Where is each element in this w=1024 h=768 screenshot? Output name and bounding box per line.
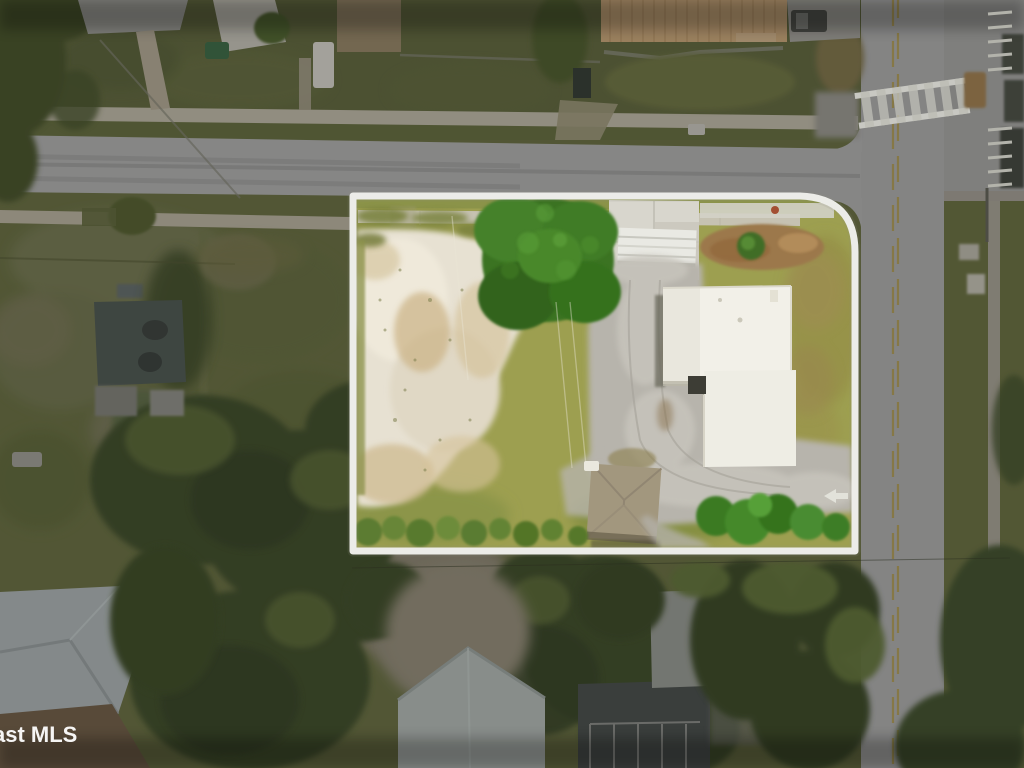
svg-text:ast MLS: ast MLS [0, 722, 77, 747]
